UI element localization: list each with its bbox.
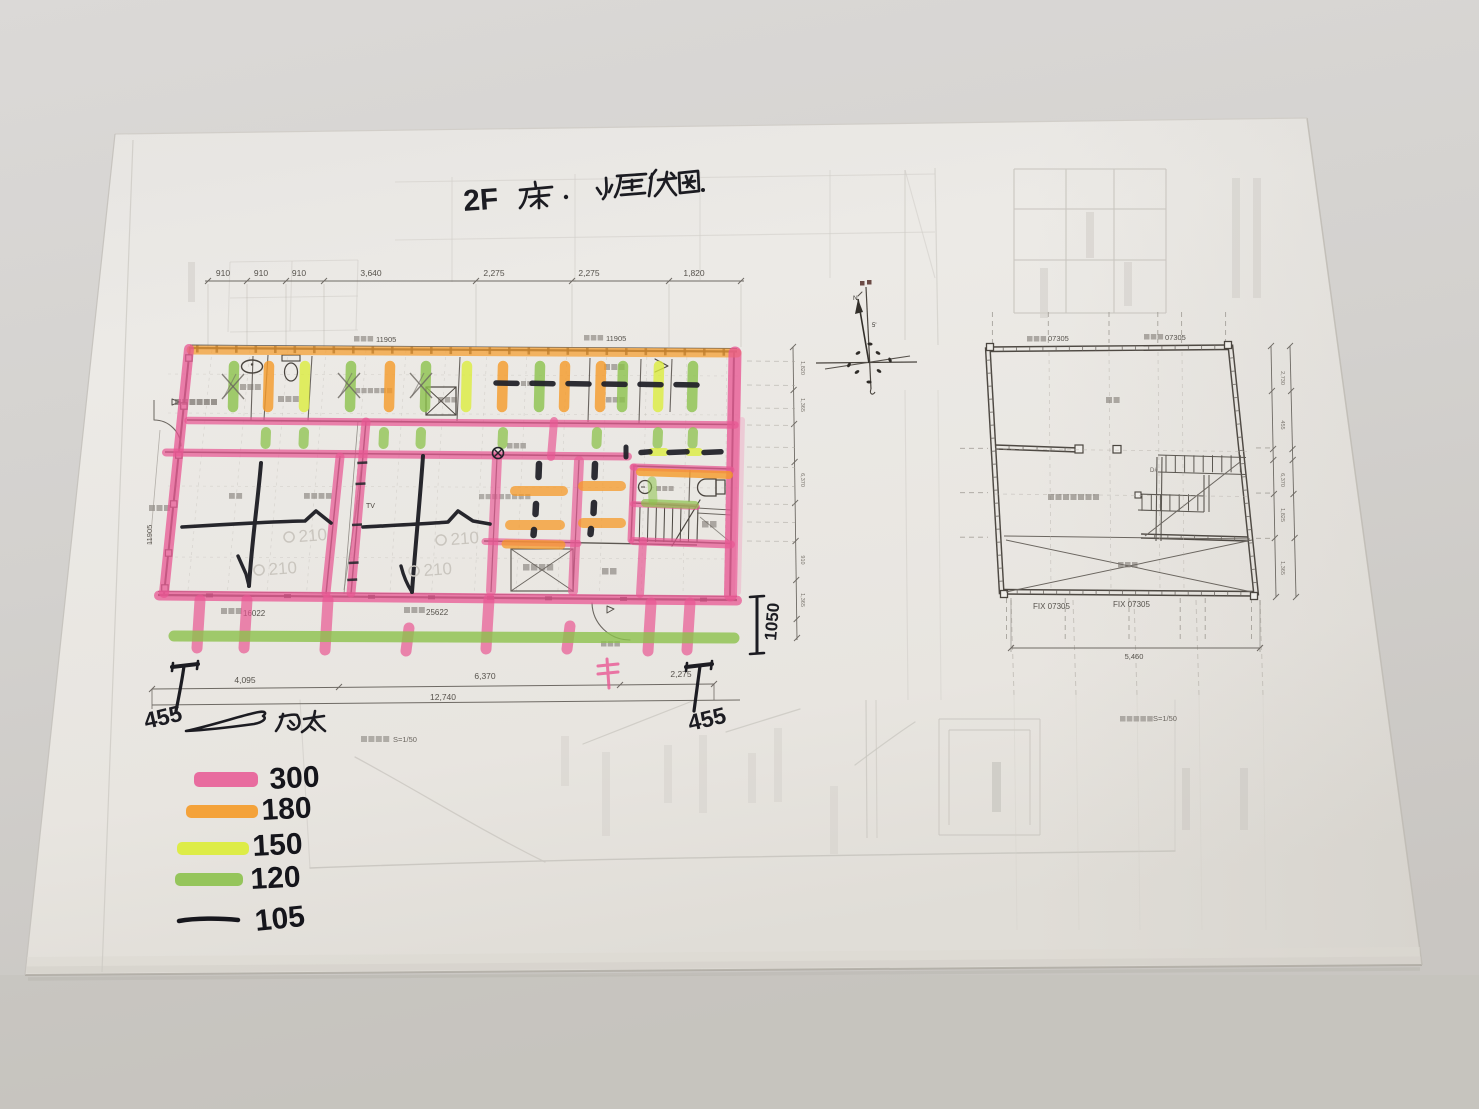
svg-text:910: 910 bbox=[292, 268, 306, 278]
svg-text:910: 910 bbox=[216, 268, 230, 278]
svg-text:210: 210 bbox=[423, 559, 453, 580]
svg-text:1050: 1050 bbox=[761, 602, 783, 641]
svg-text:2,275: 2,275 bbox=[578, 268, 600, 278]
svg-text:FIX 07305: FIX 07305 bbox=[1033, 602, 1070, 611]
svg-text:120: 120 bbox=[250, 860, 302, 896]
svg-text:105: 105 bbox=[253, 900, 306, 938]
svg-text:12,740: 12,740 bbox=[430, 692, 456, 702]
svg-text:5,460: 5,460 bbox=[1125, 652, 1144, 661]
svg-text:25622: 25622 bbox=[426, 608, 449, 617]
svg-text:S=1/50: S=1/50 bbox=[1153, 714, 1177, 723]
svg-text:1,365: 1,365 bbox=[799, 593, 805, 607]
svg-text:210: 210 bbox=[268, 558, 298, 579]
svg-text:210: 210 bbox=[450, 528, 480, 549]
svg-text:910: 910 bbox=[799, 555, 805, 564]
svg-text:1,825: 1,825 bbox=[1279, 508, 1285, 522]
svg-text:210: 210 bbox=[298, 525, 328, 546]
svg-text:11905: 11905 bbox=[145, 525, 154, 545]
svg-text:2F: 2F bbox=[462, 183, 499, 218]
svg-text:N: N bbox=[853, 295, 858, 302]
svg-text:TV: TV bbox=[366, 503, 375, 510]
svg-text:11905: 11905 bbox=[376, 335, 396, 344]
svg-text:1,820: 1,820 bbox=[799, 361, 805, 375]
svg-text:1,365: 1,365 bbox=[799, 398, 805, 412]
svg-text:300: 300 bbox=[269, 760, 321, 796]
svg-text:5': 5' bbox=[872, 323, 876, 329]
svg-text:4,095: 4,095 bbox=[234, 675, 256, 685]
svg-text:6,370: 6,370 bbox=[799, 473, 805, 487]
svg-text:D#: D# bbox=[1150, 468, 1158, 474]
svg-text:3,640: 3,640 bbox=[360, 268, 382, 278]
svg-text:07305: 07305 bbox=[1165, 333, 1186, 342]
svg-text:2,275: 2,275 bbox=[670, 669, 692, 679]
svg-text:S=1/50: S=1/50 bbox=[393, 735, 417, 744]
svg-text:910: 910 bbox=[254, 268, 268, 278]
svg-text:1,365: 1,365 bbox=[1279, 561, 1285, 575]
svg-text:180: 180 bbox=[261, 791, 313, 827]
svg-text:6,370: 6,370 bbox=[1279, 473, 1285, 487]
svg-text:FIX 07305: FIX 07305 bbox=[1113, 600, 1150, 609]
svg-text:2,275: 2,275 bbox=[483, 268, 505, 278]
svg-text:6,370: 6,370 bbox=[474, 671, 496, 681]
svg-text:07305: 07305 bbox=[1048, 334, 1069, 343]
svg-text:2,730: 2,730 bbox=[1279, 371, 1285, 385]
svg-text:11905: 11905 bbox=[606, 334, 626, 343]
svg-text:1,820: 1,820 bbox=[683, 268, 705, 278]
svg-text:455: 455 bbox=[1279, 420, 1285, 429]
svg-text:150: 150 bbox=[252, 827, 304, 863]
